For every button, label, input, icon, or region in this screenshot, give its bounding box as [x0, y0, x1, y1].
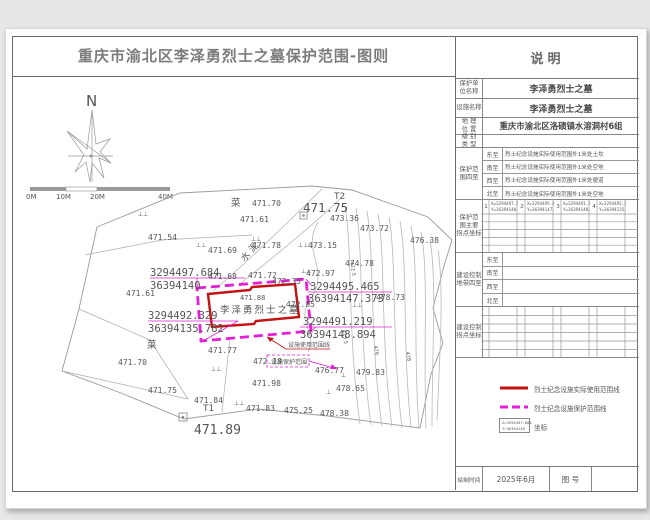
title-divider [12, 76, 455, 77]
dir-text: 烈士纪念设施实际使用范围外1米处空地 [505, 161, 638, 173]
scope-row-south: 南至 烈士纪念设施实际使用范围外1米处空地 [483, 161, 639, 174]
point-y: Y=36394148.894 [563, 207, 590, 213]
info-panel: 说明 保护单 位名称 李泽勇烈士之墓 设施名称 李泽勇烈士之墓 地 理 位 置 … [455, 36, 639, 490]
page: { "title": "重庆市渝北区李泽勇烈士之墓保护范围-图则", "colo… [0, 0, 650, 520]
row-level-type-value [483, 135, 639, 147]
label-line1: 建设控制 [456, 272, 481, 280]
point1-no: 1 [482, 200, 490, 214]
footer-no-label: 图 号 [550, 467, 592, 491]
block-control-points-label: 建设控制 拐点坐标 [456, 307, 483, 357]
label-line1: 保护单 [460, 80, 479, 88]
dir-text: 烈士纪念设施实际使用范围外1米处便道 [505, 174, 638, 186]
row-protection-unit-label: 保护单 位名称 [456, 78, 483, 98]
point4-xy: X=3294492.329 Y=36394135.782 [599, 200, 626, 214]
legend-coord-sample: X=3294497.684 Y=36394140 [499, 418, 530, 433]
panel-header: 说明 [456, 36, 639, 79]
label-line1: 设施名称 [456, 104, 481, 112]
label-line1: 保护范 [460, 166, 479, 174]
point2-xy: X=3294495.465 Y=36394147.373 [527, 200, 554, 214]
label-line2: 地带四至 [456, 280, 481, 288]
row-facility-name: 设施名称 李泽勇烈士之墓 [456, 99, 639, 118]
footer-time-label: 绘制时间 [456, 467, 483, 491]
label-line2: 围主要 [460, 222, 479, 230]
block-protection-scope-label: 保护范 围四至 [456, 148, 483, 199]
dir-label: 北至 [483, 187, 503, 200]
label-line3: 拐点坐标 [456, 230, 481, 238]
scope-row-north: 北至 烈士纪念设施实际使用范围外1米处空地 [483, 187, 639, 200]
row-location-value: 重庆市渝北区洛碛镇水溶洞村6组 [483, 118, 639, 134]
dir-label: 南至 [483, 267, 503, 280]
row-protection-unit-value: 李泽勇烈士之墓 [483, 78, 639, 98]
label-line1: 保护范 [460, 214, 479, 222]
block-scope-points-label: 保护范 围主要 拐点坐标 [456, 200, 483, 252]
row-location-label: 地 理 位 置 [456, 118, 483, 134]
point3-xy: X=3294491.219 Y=36394148.894 [563, 200, 590, 214]
footer-time-value: 2025年6月 [483, 467, 550, 491]
row-facility-name-label: 设施名称 [456, 99, 483, 117]
scope-row-west: 西至 烈士纪念设施实际使用范围外1米处便道 [483, 174, 639, 187]
row-level-type-label: 级 别 类 型 [456, 135, 483, 147]
point-y: Y=36394147.373 [527, 207, 554, 213]
point-y: Y=36394140 [491, 207, 516, 213]
control-row-north: 北至 [483, 294, 639, 308]
row-facility-name-value: 李泽勇烈士之墓 [483, 99, 639, 117]
control-row-south: 南至 [483, 267, 639, 281]
legend-block: 烈士纪念设施实际使用范围线 烈士纪念设施保护范围线 X=3294497.684 … [456, 358, 639, 466]
page-title: 重庆市渝北区李泽勇烈士之墓保护范围-图则 [12, 36, 455, 76]
coord-sample-y: Y=36394140 [502, 426, 529, 432]
point-y: Y=36394135.782 [599, 207, 626, 213]
dir-label: 西至 [483, 174, 503, 186]
label-line2: 拐点坐标 [456, 332, 481, 340]
label-line2: 围四至 [460, 174, 479, 182]
row-location: 地 理 位 置 重庆市渝北区洛碛镇水溶洞村6组 [456, 118, 639, 135]
dir-label: 南至 [483, 161, 503, 173]
legend-protect-line-label: 烈士纪念设施保护范围线 [534, 403, 607, 413]
row-protection-unit: 保护单 位名称 李泽勇烈士之墓 [456, 78, 639, 99]
dir-label: 东至 [483, 148, 503, 160]
legend-coord-label: 坐标 [534, 422, 547, 432]
block-control-scope: 建设控制 地带四至 东至 南至 西至 北至 [456, 253, 639, 307]
block-control-scope-label: 建设控制 地带四至 [456, 253, 483, 306]
label-line1: 建设控制 [456, 324, 481, 332]
control-row-east: 东至 [483, 253, 639, 267]
label-line1: 级 别 [462, 133, 477, 141]
control-row-west: 西至 [483, 280, 639, 294]
row-level-type: 级 别 类 型 [456, 135, 639, 148]
footer-row: 绘制时间 2025年6月 图 号 [456, 466, 639, 491]
point1-xy: X=3294497.684 Y=36394140 [491, 200, 518, 214]
block-control-points: 建设控制 拐点坐标 [456, 307, 639, 358]
dir-text: 烈士纪念设施实际使用范围外1米处土坎 [505, 148, 638, 160]
scope-row-east: 东至 烈士纪念设施实际使用范围外1米处土坎 [483, 148, 639, 161]
block-scope-points: 保护范 围主要 拐点坐标 1 X=3294497.684 Y=36394140 … [456, 200, 639, 253]
footer-no-value [592, 467, 639, 491]
block-protection-scope: 保护范 围四至 东至 烈士纪念设施实际使用范围外1米处土坎 南至 烈士纪念设施实… [456, 148, 639, 200]
label-line1: 地 理 [462, 118, 477, 126]
label-line2: 位名称 [460, 88, 479, 96]
point3-no: 3 [554, 200, 562, 214]
dir-label: 西至 [483, 280, 503, 293]
legend-use-line-label: 烈士纪念设施实际使用范围线 [534, 384, 620, 394]
dir-text: 烈士纪念设施实际使用范围外1米处空地 [505, 187, 638, 200]
point2-no: 2 [518, 200, 526, 214]
dir-label: 北至 [483, 294, 503, 308]
point4-no: 4 [590, 200, 598, 214]
dir-label: 东至 [483, 253, 503, 266]
